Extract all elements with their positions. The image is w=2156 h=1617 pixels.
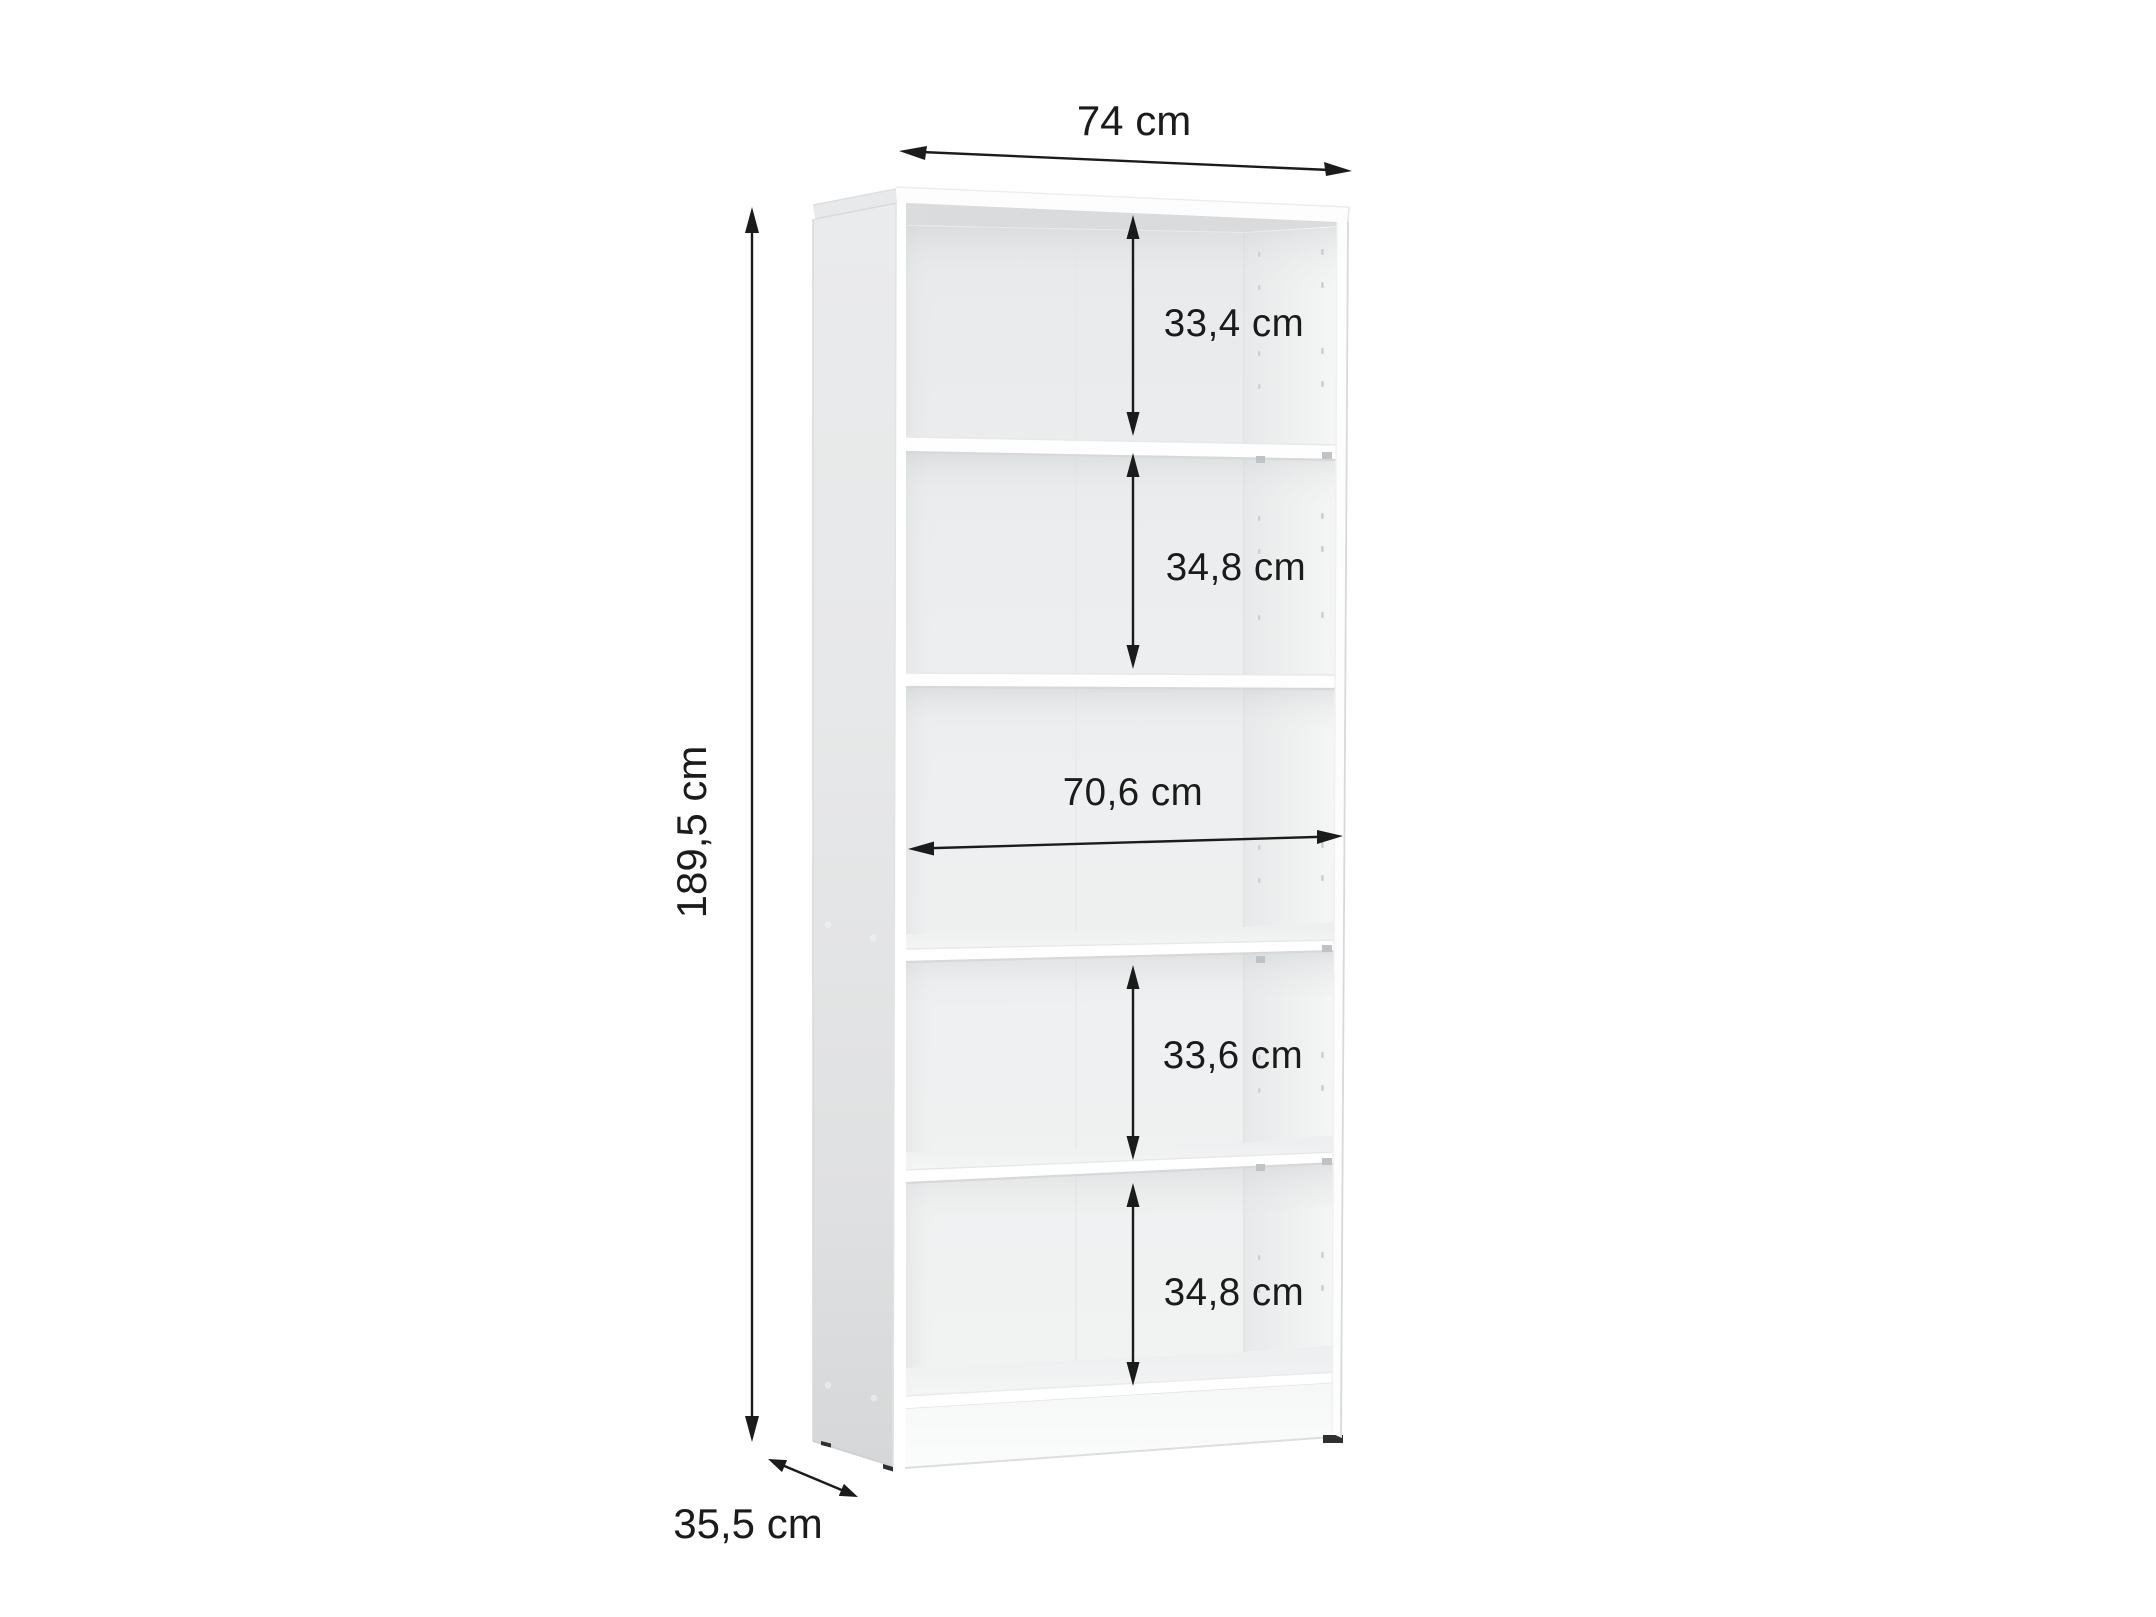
svg-text:70,6 cm: 70,6 cm [1063,771,1203,814]
svg-text:35,5 cm: 35,5 cm [673,1500,822,1547]
svg-text:34,8 cm: 34,8 cm [1164,1271,1304,1314]
svg-text:189,5 cm: 189,5 cm [668,746,715,919]
svg-text:33,6 cm: 33,6 cm [1163,1034,1303,1077]
svg-text:34,8 cm: 34,8 cm [1166,546,1306,589]
svg-text:74 cm: 74 cm [1077,97,1191,144]
svg-text:33,4 cm: 33,4 cm [1164,302,1304,345]
